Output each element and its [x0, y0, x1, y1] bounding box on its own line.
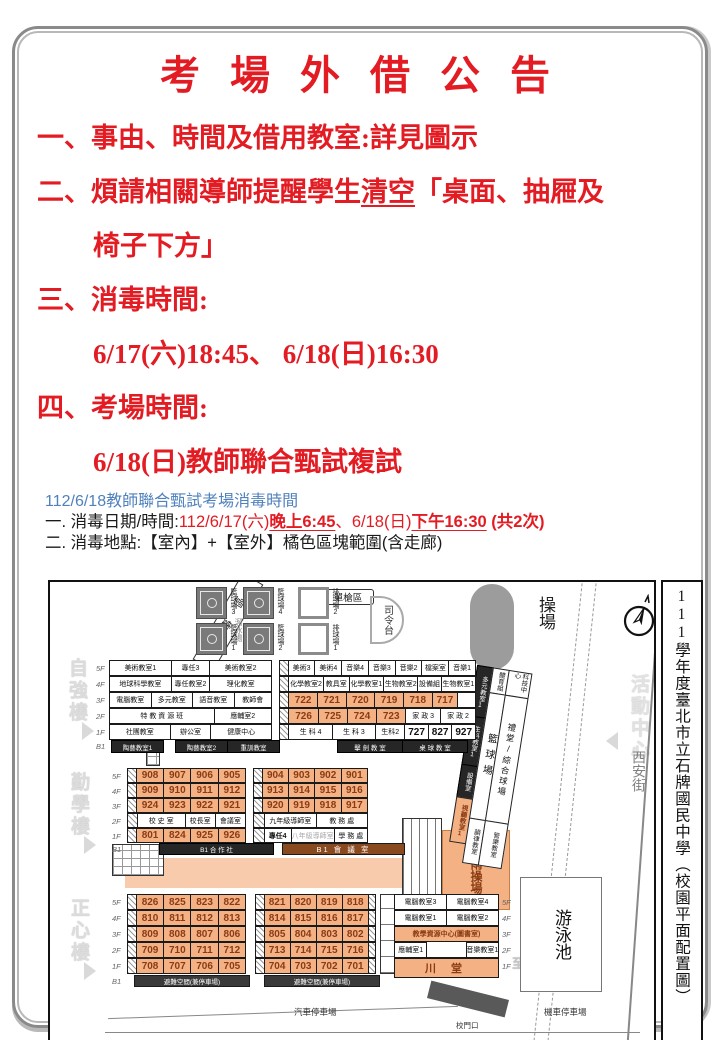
floor-row: 教學資源中心(圖書室): [395, 926, 499, 942]
floor-row: 電腦教室多元教室語音教室教師會: [110, 692, 272, 708]
room-cell: 821: [264, 894, 291, 910]
room-cell: 803: [316, 926, 343, 942]
room-cell: 生物教室1: [441, 676, 476, 692]
announcement-line: 二、煩請相關導師提醒學生清空「桌面、抽屜及: [37, 165, 705, 219]
ziqiang-building-watermark: 自強樓: [66, 658, 86, 724]
room-cell: 908: [136, 768, 164, 783]
room-cell: 音樂2: [395, 660, 423, 676]
room-cell: 725: [318, 708, 348, 724]
floor-label: 4F: [96, 680, 105, 689]
floor-row: 專任4八年級導師室學 務 處: [254, 828, 368, 843]
room-cell: 八年級導師室: [291, 828, 335, 843]
room-cell: 907: [163, 768, 191, 783]
stage-shape: 司令台: [370, 596, 404, 644]
room-cell: 教 務 處: [316, 813, 368, 828]
swimming-pool: 游泳池: [520, 877, 602, 992]
room-cell: 美術3: [288, 660, 316, 676]
room-cell: 817: [342, 910, 369, 926]
text-segment: 椅子下方」: [93, 231, 228, 261]
floor-row: 713714715716: [256, 942, 376, 958]
room-cell: 818: [342, 894, 369, 910]
announcement-line: 四、考場時間:: [37, 381, 705, 435]
room-cell: 擊 劍 教 室: [337, 740, 403, 753]
scooter-park-label: 機車停車場: [544, 1006, 587, 1018]
floor-label: 1F: [96, 728, 105, 737]
room-cell: 901: [341, 768, 368, 783]
room-cell: 電腦教室3: [394, 894, 447, 910]
room-cell: 美術教室2: [209, 660, 272, 676]
floor-label: 5F: [112, 898, 121, 907]
activity-center-arrow: [606, 732, 618, 750]
room-cell: 811: [163, 910, 191, 926]
floor-row: B1 會 議 室: [283, 843, 405, 855]
floor-row: 應輔室1音樂教室1: [395, 942, 499, 958]
room-cell: 917: [341, 798, 368, 813]
room-cell: 919: [288, 798, 315, 813]
room-cell: 電腦教室1: [394, 910, 447, 926]
floor-label: 2F: [112, 946, 121, 955]
text-segment: 6/18(日): [352, 513, 412, 531]
disinfection-notice: 112/6/18教師聯合甄試考場消毒時間 一. 消毒日期/時間:112/6/17…: [15, 491, 705, 554]
basketball-court-1-label: 籃球場1: [229, 624, 237, 652]
basketball-court-4-label: 籃球場4: [276, 588, 284, 616]
room-cell: 827: [428, 724, 453, 740]
room-cell: 電腦教室2: [446, 910, 499, 926]
text-segment: (共2次): [487, 513, 545, 531]
car-park-label: 汽車停車場: [294, 1006, 337, 1018]
room-cell: 822: [218, 894, 246, 910]
floor-label: 3F: [112, 930, 121, 939]
floor-label: 5F: [112, 772, 121, 781]
room-cell: 教師會: [234, 692, 272, 708]
floor-row: 821820819818: [256, 894, 376, 910]
room-cell: 809: [136, 926, 164, 942]
room-cell: B1 會 議 室: [282, 843, 405, 855]
room-cell: 903: [288, 768, 315, 783]
floor-label: B1: [112, 977, 121, 986]
floor-label: 1F: [112, 962, 121, 971]
room-cell: 專任教室2: [171, 676, 210, 692]
room-cell: 辦公室: [170, 724, 212, 740]
basketball-court-2: [243, 623, 274, 655]
room-cell: 電腦教室: [109, 692, 152, 708]
room-cell: 924: [136, 798, 164, 813]
text-segment: 二、煩請相關導師提醒學生: [37, 177, 361, 207]
room-cell: 生物教室2: [383, 676, 418, 692]
floor-row: 726725724723家 政 3家 政 2: [280, 708, 476, 724]
floor-row: 生 科 4生 科 3生科2727827927: [280, 724, 476, 740]
room-cell: 812: [190, 910, 218, 926]
room-cell: 906: [190, 768, 218, 783]
room-cell: 727: [404, 724, 429, 740]
gate-wall: [427, 981, 509, 1018]
text-segment: 一. 消毒日期/時間:: [45, 513, 179, 531]
text-segment: 6/18(日)教師聯合甄試複試: [93, 447, 402, 477]
room-cell: 多元教室: [151, 692, 194, 708]
floor-row: 陶藝教室1陶藝教室2重訓教室: [112, 740, 280, 753]
room-cell: 特 教 資 源 班: [109, 708, 215, 724]
floor-label: 3F: [112, 802, 121, 811]
room-cell: 705: [218, 958, 246, 974]
room-cell: 避難空間(兼停車場): [134, 975, 250, 987]
room-cell: 校長室: [185, 813, 216, 828]
room-cell: 923: [163, 798, 191, 813]
map-title-sidebar: 111學年度臺北市立石牌國民中學︵校園平面配置圖︶ 111.7製: [661, 580, 703, 1040]
room-cell: 709: [136, 942, 164, 958]
floor-row: 805804803802: [256, 926, 376, 942]
floor-row: 美術3美術4音樂4音樂3音樂2檔案室音樂1: [280, 660, 476, 676]
floor-label: 4F: [112, 787, 121, 796]
text-segment: 下午16:30: [411, 513, 486, 531]
floor-row: 722721720719718717: [280, 692, 476, 708]
room-cell: 913: [262, 783, 289, 798]
room-cell: 712: [218, 942, 246, 958]
projector-area-label: 單槍區: [322, 589, 374, 605]
floor-label: 5F: [96, 664, 105, 673]
room-cell: 918: [314, 798, 341, 813]
room-cell: 726: [288, 708, 318, 724]
room-cell: 化學教室2: [288, 676, 323, 692]
room-cell: 專任3: [171, 660, 210, 676]
floor-row: 826825823822: [128, 894, 246, 910]
room-cell: 719: [374, 692, 404, 708]
room-cell: 川 堂: [394, 958, 499, 978]
floor-row: 避難空間(兼停車場): [135, 975, 250, 987]
xian-street-label: 西安街: [608, 750, 656, 792]
volleyball-court-2-label: 排球場2: [331, 588, 339, 616]
room-cell: 714: [290, 942, 317, 958]
volleyball-court-1: [298, 623, 329, 655]
swimming-pool-label: 游泳池: [542, 909, 580, 960]
room-cell: 理化教室: [209, 676, 272, 692]
text-segment: 「桌面、抽屜及: [415, 177, 604, 207]
room-cell: 704: [264, 958, 291, 974]
room-cell: 生科2: [375, 724, 405, 740]
room-cell: 927: [451, 724, 476, 740]
floor-row: 709710711712: [128, 942, 246, 958]
floor-row: 904903902901: [254, 768, 368, 783]
room-cell: 801: [136, 828, 164, 843]
room-cell: 825: [163, 894, 191, 910]
text-segment: 二. 消毒地點:【室內】+【室外】橘色區塊範圍(含走廊): [45, 534, 442, 552]
basketball-court-3: [196, 587, 227, 619]
room-cell: [368, 894, 376, 910]
gate-label: 校門口: [456, 1020, 479, 1031]
room-cell: 校 史 室: [137, 813, 186, 828]
floor-row: 擊 劍 教 室桌 球 教 室: [338, 740, 468, 753]
track-label: 操場: [528, 596, 562, 630]
floor-row: 特 教 資 源 班應輔室2: [110, 708, 272, 724]
notice-line: 二. 消毒地點:【室內】+【室外】橘色區塊範圍(含走廊): [45, 533, 705, 554]
room-cell: 會議室: [215, 813, 246, 828]
room-cell: 715: [316, 942, 343, 958]
room-cell: 713: [264, 942, 291, 958]
room-cell: 707: [163, 958, 191, 974]
volleyball-court-1-label: 排球場1: [331, 624, 339, 652]
room-cell: 708: [136, 958, 164, 974]
room-cell: 檔案室: [421, 660, 449, 676]
floor-label: 1F: [502, 962, 511, 971]
room-cell: 717: [432, 692, 459, 708]
room-cell: 915: [314, 783, 341, 798]
room-cell: 819: [316, 894, 343, 910]
floor-row: 九年級導師室教 務 處: [254, 813, 368, 828]
room-cell: 地球科學教室: [109, 676, 172, 692]
announcement-line: 一、事由、時間及借用教室:詳見圖示: [37, 111, 705, 165]
room-cell: 920: [262, 798, 289, 813]
room-cell: 826: [136, 894, 164, 910]
room-cell: 桌 球 教 室: [402, 740, 468, 753]
floor-row: 電腦教室1電腦教室2: [395, 910, 499, 926]
room-cell: 語音教室: [192, 692, 235, 708]
floor-row: 814815816817: [256, 910, 376, 926]
announcement-line: 6/18(日)教師聯合甄試複試: [37, 435, 705, 489]
text-segment: 四、考場時間:: [37, 393, 208, 423]
floor-row: 801824925926: [128, 828, 246, 843]
courtyard-area: [125, 858, 447, 888]
qinxue-building-watermark: 勤學樓: [68, 772, 88, 838]
room-cell: 美術教室1: [109, 660, 172, 676]
room-cell: 716: [342, 942, 369, 958]
room-cell: 701: [342, 958, 369, 974]
floor-label: B1: [96, 742, 105, 751]
floor-row: 920919918917: [254, 798, 368, 813]
announcement-list: 一、事由、時間及借用教室:詳見圖示二、煩請相關導師提醒學生清空「桌面、抽屜及椅子…: [15, 111, 705, 489]
floor-label: 4F: [112, 914, 121, 923]
basketball-court-3-label: 籃球場3: [229, 588, 237, 616]
text-segment: 一、事由、時間及借用教室:詳見圖示: [37, 123, 478, 153]
room-cell: 應輔室2: [214, 708, 272, 724]
room-cell: 721: [317, 692, 347, 708]
zhengxin-arrow: [84, 962, 96, 980]
room-cell: 916: [341, 783, 368, 798]
floor-label: 3F: [96, 696, 105, 705]
stair-cells-column-2: [380, 894, 395, 974]
floor-label: 2F: [112, 817, 121, 826]
room-cell: 922: [190, 798, 218, 813]
room-cell: [368, 958, 376, 974]
room-cell: 816: [316, 910, 343, 926]
room-cell: 音樂3: [368, 660, 396, 676]
room-cell: 家 政 3: [405, 708, 441, 724]
room-cell: [368, 910, 376, 926]
campus-map: 炊 事 區 單槍區 溜冰場 籃球場3 籃球場1 籃球場4 籃球場2 排球場2 排…: [48, 580, 656, 1040]
room-cell: [426, 942, 466, 958]
floor-row: 電腦教室3電腦教室4: [395, 894, 499, 910]
room-cell: 711: [190, 942, 218, 958]
room-cell: 音樂教室1: [466, 942, 499, 958]
map-title-vertical: 111學年度臺北市立石牌國民中學︵校園平面配置圖︶: [664, 588, 702, 1040]
room-cell: 824: [163, 828, 191, 843]
running-track: [470, 584, 514, 670]
road-label: 石 牌 路 一 段: [240, 1036, 464, 1040]
street-edge-line: [625, 580, 656, 1040]
floor-row: 避難空間(兼停車場): [265, 975, 380, 987]
room-cell: [368, 942, 376, 958]
room-cell: 808: [163, 926, 191, 942]
room-cell: 美術4: [314, 660, 342, 676]
floor-row: 美術教室1專任3美術教室2: [110, 660, 272, 676]
page-frame: 考 場 外 借 公 告 一、事由、時間及借用教室:詳見圖示二、煩請相關導師提醒學…: [12, 26, 708, 1028]
floor-row: 924923922921: [128, 798, 246, 813]
floor-row: 810811812813: [128, 910, 246, 926]
room-cell: 902: [314, 768, 341, 783]
room-cell: 925: [190, 828, 218, 843]
room-cell: 905: [218, 768, 246, 783]
room-cell: 教具室: [323, 676, 350, 692]
room-cell: 學 務 處: [334, 828, 368, 843]
announcement-line: 椅子下方」: [37, 219, 705, 273]
room-cell: 810: [136, 910, 164, 926]
room-cell: 802: [342, 926, 369, 942]
room-cell: 九年級導師室: [264, 813, 316, 828]
room-cell: 應輔室1: [394, 942, 427, 958]
room-cell: 重訓教室: [227, 740, 280, 753]
floor-row: 地球科學教室專任教室2理化教室: [110, 676, 272, 692]
floor-label: 4F: [502, 914, 511, 923]
room-cell: 教學資源中心(圖書室): [394, 926, 499, 942]
parking-boundary-line: [108, 1006, 458, 1019]
floor-label: 1F: [112, 832, 121, 841]
room-cell: 723: [376, 708, 406, 724]
announcement-page: 考 場 外 借 公 告 一、事由、時間及借用教室:詳見圖示二、煩請相關導師提醒學…: [0, 0, 720, 1040]
room-cell: 電腦教室4: [446, 894, 499, 910]
qinxue-arrow: [84, 836, 96, 854]
basketball-court-1: [196, 623, 227, 655]
text-segment: 清空: [361, 177, 415, 207]
room-cell: 720: [346, 692, 376, 708]
stage-label: 司令台: [382, 605, 393, 635]
floor-label: B1: [112, 845, 121, 854]
floor-row: 川 堂: [395, 958, 499, 978]
room-cell: 806: [218, 926, 246, 942]
notice-line: 一. 消毒日期/時間:112/6/17(六)晚上6:45、6/18(日)下午16…: [45, 512, 705, 533]
room-cell: 904: [262, 768, 289, 783]
text-segment: 、: [335, 513, 352, 531]
room-cell: 823: [190, 894, 218, 910]
room-cell: 814: [264, 910, 291, 926]
floor-label: 5F: [502, 898, 511, 907]
floor-row: B1 合 作 社: [160, 843, 274, 855]
text-segment: 112/6/17(六): [179, 513, 270, 531]
room-cell: 音樂1: [448, 660, 476, 676]
activity-center-watermark: 活動中心: [628, 674, 648, 762]
floor-row: 社團教室辦公室健康中心: [110, 724, 272, 740]
room-cell: 設備組: [417, 676, 441, 692]
room-cell: 703: [290, 958, 317, 974]
floor-label: 2F: [96, 712, 105, 721]
floor-label: 2F: [502, 946, 511, 955]
floor-row: 化學教室2教具室化學教室1生物教室2設備組生物教室1: [280, 676, 476, 692]
basketball-court-2-label: 籃球場2: [276, 624, 284, 652]
text-segment: 三、消毒時間:: [37, 285, 208, 315]
floor-row: 校 史 室校長室會議室: [128, 813, 246, 828]
announcement-line: 6/17(六)18:45、 6/18(日)16:30: [37, 327, 705, 381]
room-cell: 家 政 2: [440, 708, 476, 724]
page-title: 考 場 外 借 公 告: [15, 43, 705, 101]
room-cell: 722: [288, 692, 318, 708]
room-cell: 914: [288, 783, 315, 798]
room-cell: 820: [290, 894, 317, 910]
room-cell: 702: [316, 958, 343, 974]
ziqiang-arrow: [82, 722, 94, 740]
floor-row: 913914915916: [254, 783, 368, 798]
announcement-line: 三、消毒時間:: [37, 273, 705, 327]
floor-row: 708707706705: [128, 958, 246, 974]
room-cell: 921: [218, 798, 246, 813]
room-cell: 生 科 4: [288, 724, 332, 740]
room-cell: 724: [347, 708, 377, 724]
room-cell: [368, 926, 376, 942]
road-line: [105, 1032, 640, 1033]
room-cell: 避難空間(兼停車場): [264, 975, 380, 987]
text-segment: 6/17(六)18:45、 6/18(日)16:30: [93, 339, 439, 369]
room-cell: 生 科 3: [332, 724, 376, 740]
room-cell: 陶藝教室2: [175, 740, 228, 753]
room-cell: 807: [190, 926, 218, 942]
room-cell: 706: [190, 958, 218, 974]
floor-label: 3F: [502, 930, 511, 939]
floor-row: 704703702701: [256, 958, 376, 974]
room-cell: 音樂4: [341, 660, 369, 676]
room-cell: 710: [163, 942, 191, 958]
room-cell: 化學教室1: [349, 676, 384, 692]
room-cell: 911: [190, 783, 218, 798]
zhengxin-building-watermark: 正心樓: [68, 898, 88, 964]
room-cell: 805: [264, 926, 291, 942]
floor-row: 809808807806: [128, 926, 246, 942]
room-cell: B1 合 作 社: [159, 843, 274, 855]
floor-row: 909910911912: [128, 783, 246, 798]
compass-icon: [618, 594, 656, 640]
volleyball-court-2: [298, 587, 329, 619]
room-cell: 912: [218, 783, 246, 798]
notice-lines: 一. 消毒日期/時間:112/6/17(六)晚上6:45、6/18(日)下午16…: [45, 512, 705, 554]
room-cell: 專任4: [264, 828, 292, 843]
room-cell: 718: [403, 692, 433, 708]
room-cell: 909: [136, 783, 164, 798]
text-segment: 晚上6:45: [269, 513, 335, 531]
room-cell: 陶藝教室1: [111, 740, 164, 753]
room-cell: 926: [218, 828, 246, 843]
room-cell: 社團教室: [109, 724, 171, 740]
floor-row: 908907906905: [128, 768, 246, 783]
room-cell: 健康中心: [210, 724, 272, 740]
room-cell: 813: [218, 910, 246, 926]
room-cell: 815: [290, 910, 317, 926]
room-cell: 910: [163, 783, 191, 798]
room-cell: [457, 692, 476, 708]
basketball-court-4: [243, 587, 274, 619]
notice-heading: 112/6/18教師聯合甄試考場消毒時間: [45, 491, 705, 512]
room-cell: 804: [290, 926, 317, 942]
